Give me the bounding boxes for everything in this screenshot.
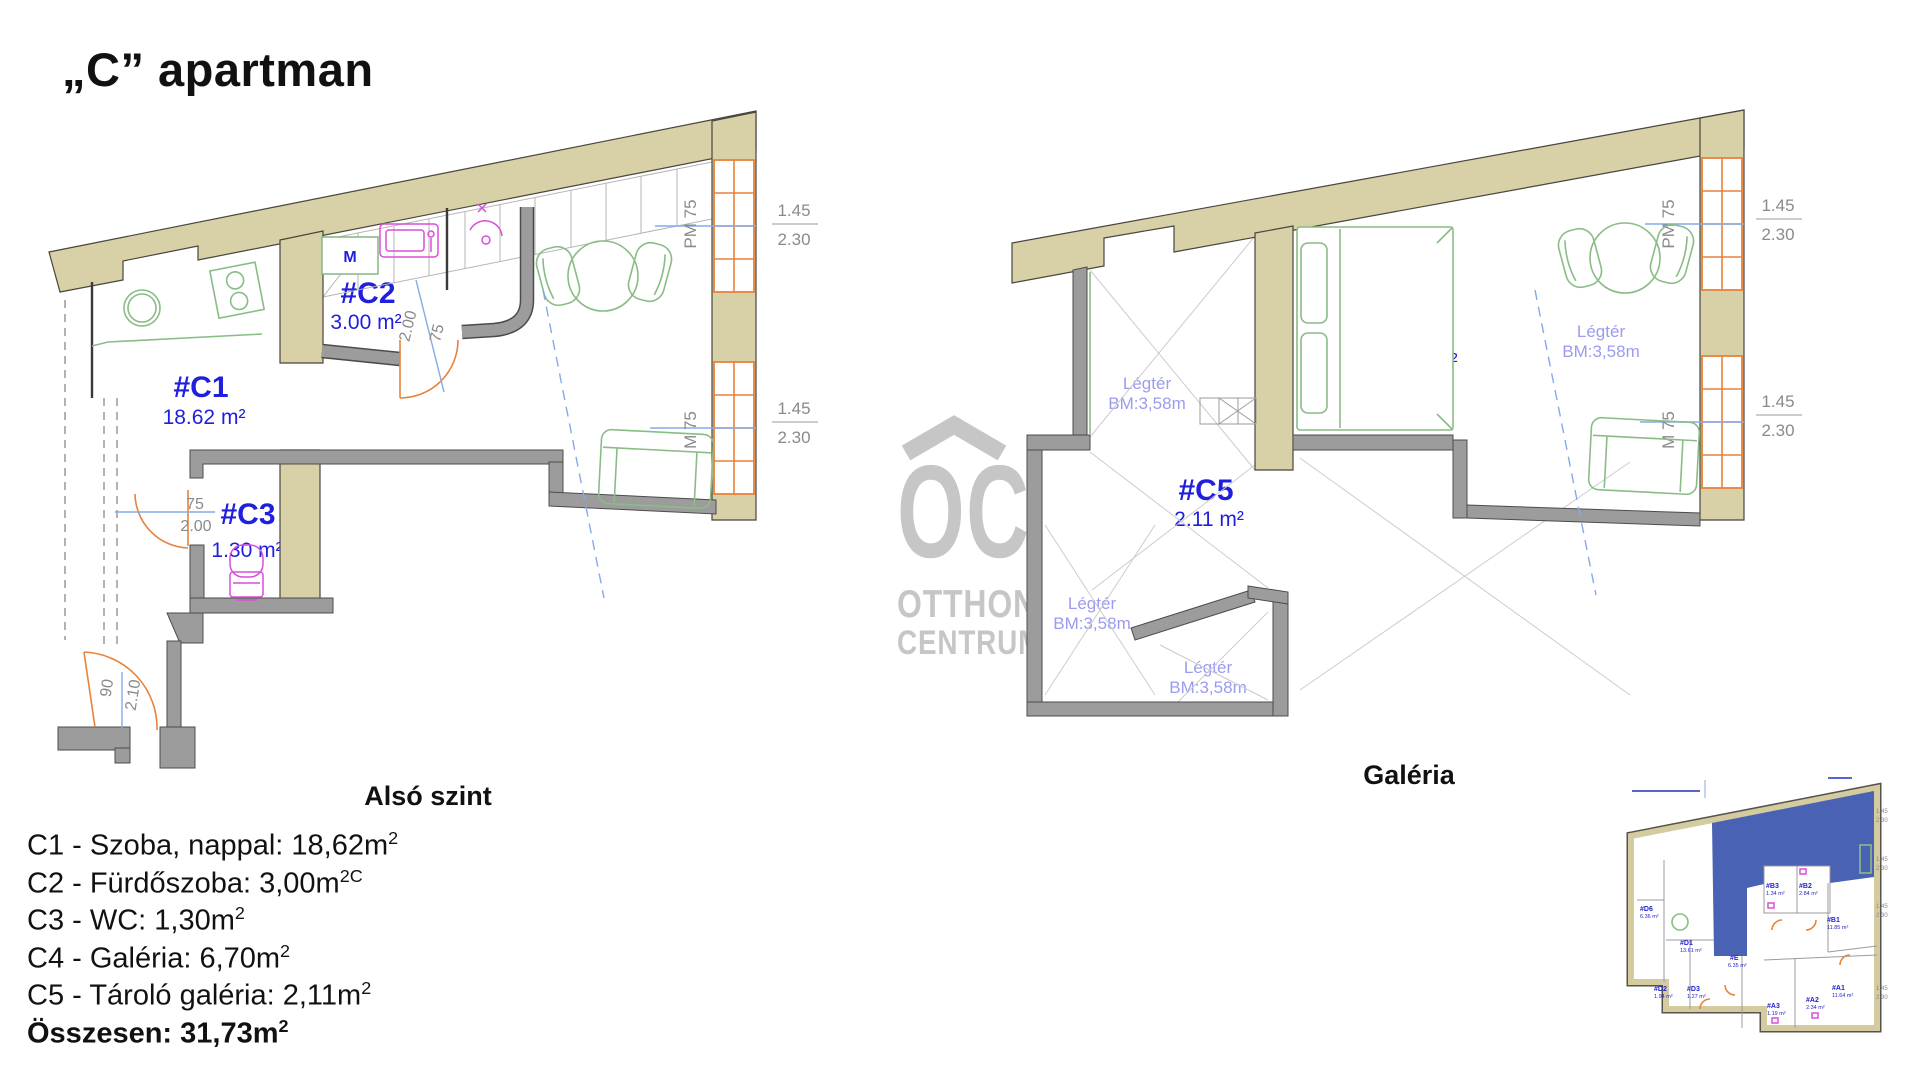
- svg-text:6.36 m²: 6.36 m²: [1640, 914, 1659, 920]
- mini-room-b3: #B3: [1766, 883, 1779, 890]
- svg-text:1.45: 1.45: [1876, 904, 1888, 910]
- svg-text:11.64 m²: 11.64 m²: [1832, 993, 1853, 999]
- dim-pm75: PM 75: [1659, 199, 1678, 248]
- mini-room-d1: #D1: [1680, 940, 1693, 947]
- dim-145: 1.45: [1761, 392, 1794, 411]
- svg-text:2.30: 2.30: [1876, 995, 1888, 1001]
- mini-room-d3: #D3: [1687, 986, 1700, 993]
- entry-door: 90 2.10: [84, 652, 157, 730]
- svg-text:13.61 m²: 13.61 m²: [1680, 948, 1702, 954]
- gray-walls: [58, 207, 716, 768]
- svg-text:2.30: 2.30: [1876, 818, 1888, 824]
- mini-room-b2: #B2: [1799, 883, 1812, 890]
- mini-room-a1: #A1: [1832, 985, 1845, 992]
- door-c3: 75 2.00: [115, 490, 215, 548]
- svg-text:1.27 m²: 1.27 m²: [1687, 994, 1706, 1000]
- mini-room-e: #E: [1730, 955, 1739, 962]
- mini-room-b1: #B1: [1827, 917, 1840, 924]
- hatch-icon: [1200, 398, 1256, 424]
- gallery-edge-line: [1535, 290, 1596, 595]
- gallery-plan: 1.45 2.30 1.45 2.30 PM 75 M 75: [1012, 110, 1802, 716]
- dim-pm75: PM 75: [681, 199, 700, 248]
- dim-entry-90: 90: [98, 678, 118, 698]
- dim-wc-200: 2.00: [180, 518, 211, 535]
- toilet-icon: [230, 545, 263, 600]
- window-lower: [650, 362, 756, 494]
- window-upper: [655, 160, 756, 292]
- dim-door-75: 75: [427, 322, 448, 343]
- door-c2: 2.00 75: [396, 280, 458, 398]
- svg-text:1.19 m²: 1.19 m²: [1767, 1011, 1786, 1017]
- mini-room-d2: #D2: [1654, 986, 1667, 993]
- dim-wc-75: 75: [186, 496, 204, 513]
- wall-pillar-c3: [280, 450, 320, 610]
- dim-230: 2.30: [1761, 225, 1794, 244]
- dim-230: 2.30: [1761, 421, 1794, 440]
- svg-text:2.84 m²: 2.84 m²: [1799, 891, 1818, 897]
- svg-text:2.30: 2.30: [1876, 913, 1888, 919]
- mini-room-a3: #A3: [1767, 1003, 1780, 1010]
- bed-icon: [1297, 227, 1453, 430]
- svg-text:1.45: 1.45: [1876, 809, 1888, 815]
- plans-drawing: 1.45 2.30 1.45 2.30 PM 75 M 75: [0, 0, 1920, 1080]
- lower-plan: 1.45 2.30 1.45 2.30 PM 75 M 75: [49, 111, 818, 768]
- sofa-icon: [1588, 417, 1700, 495]
- wall-pillar-c2: [280, 231, 323, 363]
- dining-set: [533, 239, 675, 311]
- dim-m75: M 75: [1659, 411, 1678, 449]
- wall-pillar-c4: [1255, 226, 1293, 470]
- dim-145: 1.45: [1761, 196, 1794, 215]
- svg-text:1.34 m²: 1.34 m²: [1766, 891, 1785, 897]
- svg-text:1.45: 1.45: [1876, 986, 1888, 992]
- svg-text:1.45: 1.45: [1876, 857, 1888, 863]
- dim-entry-210: 2.10: [123, 678, 145, 712]
- dim-145: 1.45: [777, 399, 810, 418]
- gallery-edge-line: [543, 290, 604, 598]
- stove-icon: [210, 262, 264, 318]
- svg-text:2.30: 2.30: [1876, 866, 1888, 872]
- wall-top-band: [49, 111, 756, 292]
- mini-room-d6: #D6: [1640, 906, 1653, 913]
- dim-230: 2.30: [777, 230, 810, 249]
- washing-machine-label: M: [343, 249, 356, 266]
- dim-m75: M 75: [681, 411, 700, 449]
- kitchen-sink-icon: [124, 290, 160, 326]
- dim-door-200: 2.00: [396, 309, 420, 343]
- svg-text:6.35 m²: 6.35 m²: [1728, 963, 1747, 969]
- svg-text:2.34 m²: 2.34 m²: [1806, 1005, 1825, 1011]
- dim-145: 1.45: [777, 201, 810, 220]
- mini-plan: #D6 6.36 m² #D1 13.61 m² #D2 1.94 m² #D3…: [1631, 778, 1888, 1028]
- floorplan-page: OC OTTHON CENTRUM: [0, 0, 1920, 1080]
- mini-room-a2: #A2: [1806, 997, 1819, 1004]
- svg-text:11.85 m²: 11.85 m²: [1827, 925, 1848, 931]
- svg-text:1.94 m²: 1.94 m²: [1654, 994, 1673, 1000]
- dim-230: 2.30: [777, 428, 810, 447]
